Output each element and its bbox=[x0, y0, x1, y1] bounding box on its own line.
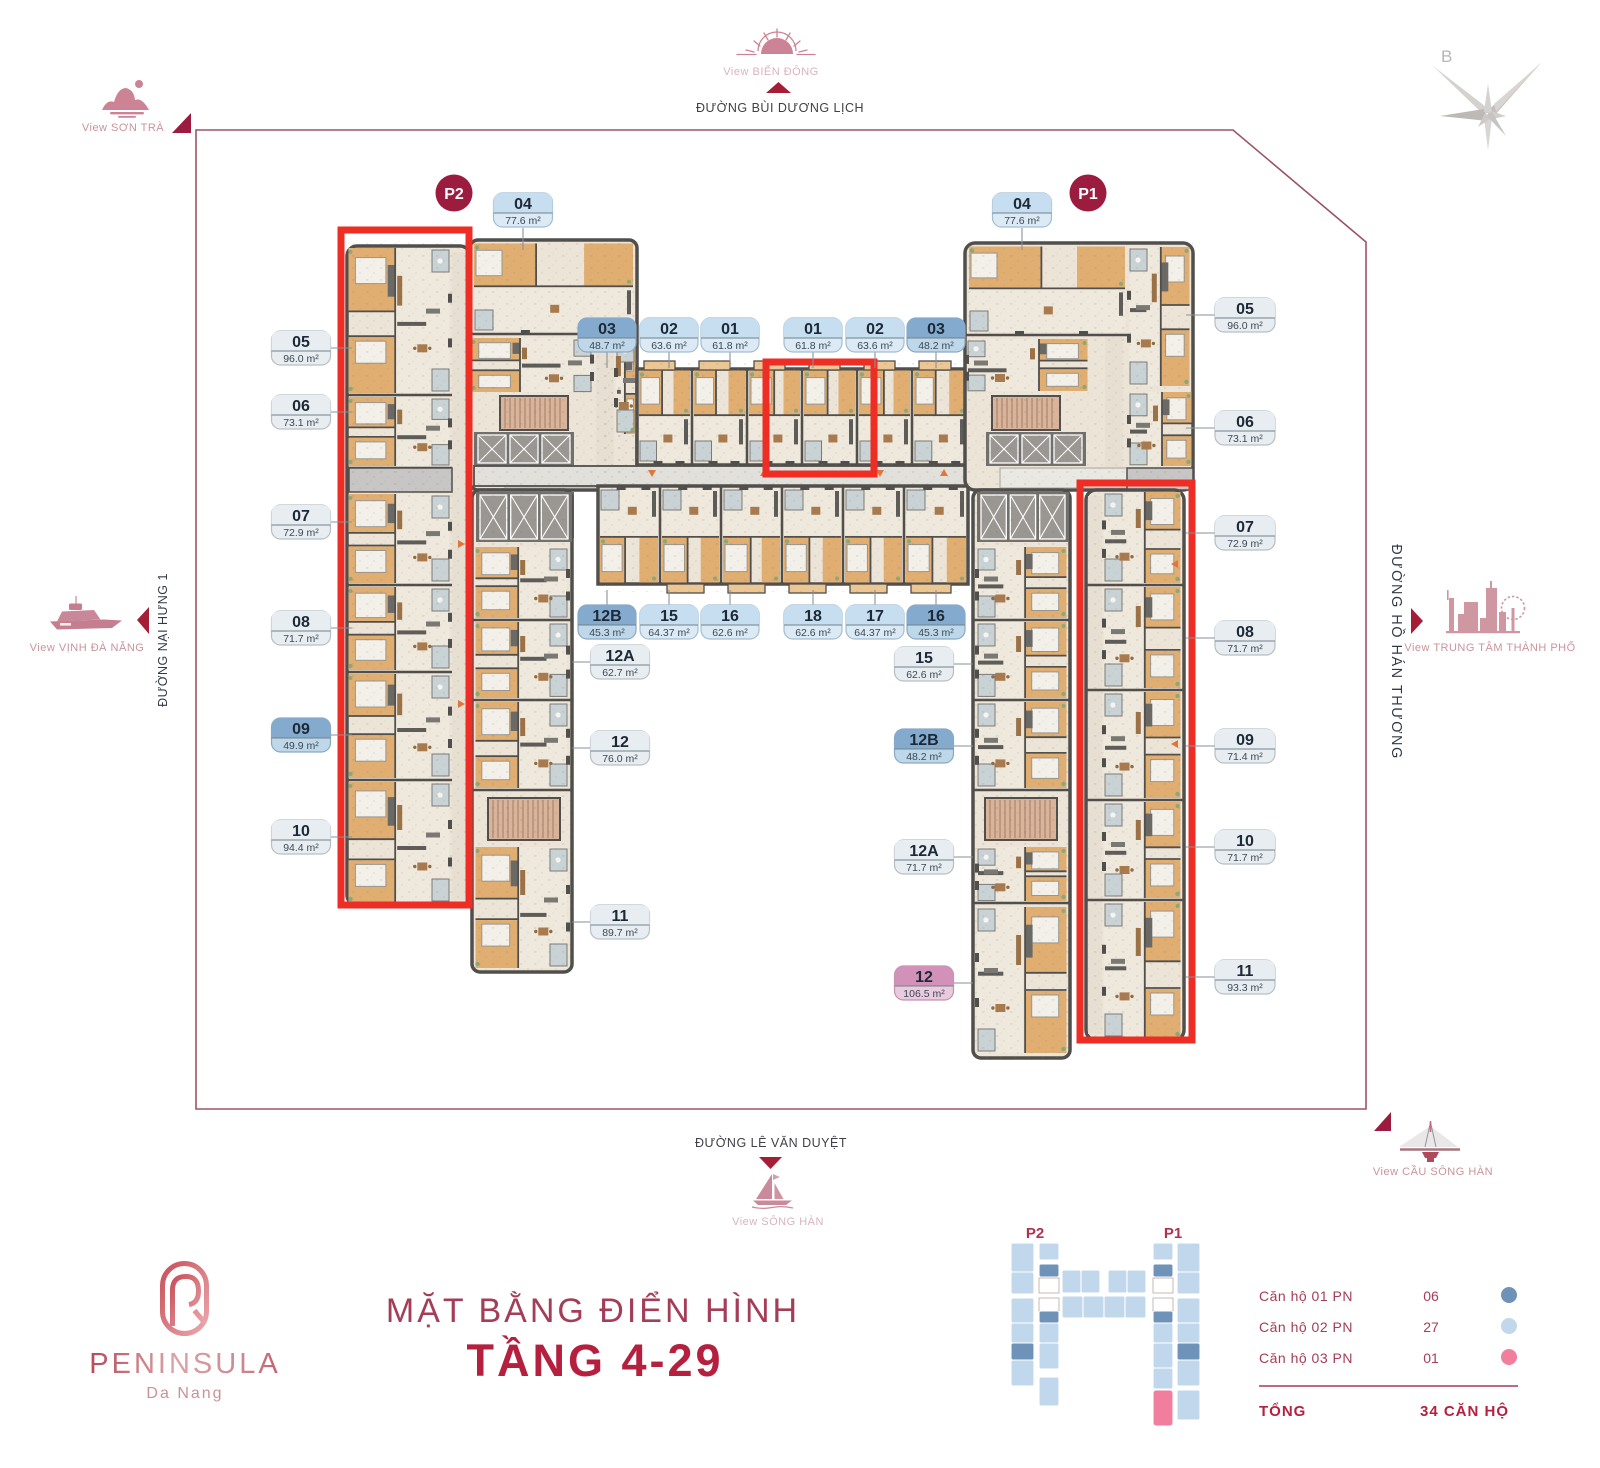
svg-text:12A: 12A bbox=[605, 648, 635, 665]
svg-text:P1: P1 bbox=[1164, 1225, 1182, 1242]
svg-text:61.8 m²: 61.8 m² bbox=[712, 340, 748, 352]
svg-text:B: B bbox=[1441, 47, 1452, 66]
svg-text:12A: 12A bbox=[909, 843, 939, 860]
svg-text:12B: 12B bbox=[909, 732, 938, 749]
svg-text:View VỊNH ĐÀ NẴNG: View VỊNH ĐÀ NẴNG bbox=[30, 641, 145, 654]
svg-text:15: 15 bbox=[915, 650, 933, 667]
svg-text:73.1 m²: 73.1 m² bbox=[283, 417, 319, 429]
svg-text:16: 16 bbox=[927, 608, 945, 625]
svg-text:06: 06 bbox=[1423, 1288, 1439, 1304]
svg-text:71.7 m²: 71.7 m² bbox=[906, 862, 942, 874]
svg-text:71.7 m²: 71.7 m² bbox=[283, 633, 319, 645]
svg-text:01: 01 bbox=[804, 321, 822, 338]
svg-text:05: 05 bbox=[1236, 301, 1254, 318]
svg-text:10: 10 bbox=[292, 823, 310, 840]
svg-text:07: 07 bbox=[1236, 519, 1254, 536]
svg-text:34 CĂN HỘ: 34 CĂN HỘ bbox=[1420, 1402, 1509, 1420]
svg-text:73.1 m²: 73.1 m² bbox=[1227, 433, 1263, 445]
svg-text:03: 03 bbox=[598, 321, 616, 338]
svg-text:ĐƯỜNG HỒ HÁN THƯƠNG: ĐƯỜNG HỒ HÁN THƯƠNG bbox=[1388, 544, 1406, 760]
svg-text:48.2 m²: 48.2 m² bbox=[918, 340, 954, 352]
svg-text:45.3 m²: 45.3 m² bbox=[589, 627, 625, 639]
svg-text:71.4 m²: 71.4 m² bbox=[1227, 751, 1263, 763]
svg-text:16: 16 bbox=[721, 608, 739, 625]
svg-text:06: 06 bbox=[292, 398, 310, 415]
svg-text:10: 10 bbox=[1236, 833, 1254, 850]
svg-text:96.0 m²: 96.0 m² bbox=[283, 353, 319, 365]
svg-text:Căn hộ 03 PN: Căn hộ 03 PN bbox=[1259, 1350, 1353, 1366]
svg-text:03: 03 bbox=[927, 321, 945, 338]
svg-text:12: 12 bbox=[611, 734, 629, 751]
svg-text:01: 01 bbox=[721, 321, 739, 338]
svg-text:89.7 m²: 89.7 m² bbox=[602, 927, 638, 939]
svg-text:96.0 m²: 96.0 m² bbox=[1227, 320, 1263, 332]
svg-text:94.4 m²: 94.4 m² bbox=[283, 842, 319, 854]
svg-text:MẶT BẰNG ĐIỂN HÌNH: MẶT BẰNG ĐIỂN HÌNH bbox=[386, 1292, 800, 1330]
svg-text:TẦNG 4-29: TẦNG 4-29 bbox=[466, 1335, 723, 1386]
svg-text:64.37 m²: 64.37 m² bbox=[648, 627, 690, 639]
svg-text:17: 17 bbox=[866, 608, 884, 625]
svg-text:61.8 m²: 61.8 m² bbox=[795, 340, 831, 352]
svg-text:01: 01 bbox=[1423, 1350, 1439, 1366]
svg-text:12: 12 bbox=[915, 969, 933, 986]
svg-text:TỔNG: TỔNG bbox=[1259, 1402, 1306, 1420]
svg-text:Da Nang: Da Nang bbox=[146, 1385, 223, 1402]
svg-text:62.7 m²: 62.7 m² bbox=[602, 667, 638, 679]
svg-text:62.6 m²: 62.6 m² bbox=[906, 669, 942, 681]
svg-text:04: 04 bbox=[514, 196, 532, 213]
svg-text:11: 11 bbox=[612, 908, 629, 925]
svg-text:72.9 m²: 72.9 m² bbox=[1227, 538, 1263, 550]
svg-text:02: 02 bbox=[660, 321, 678, 338]
svg-text:View BIỂN ĐÔNG: View BIỂN ĐÔNG bbox=[723, 65, 818, 78]
svg-text:View TRUNG TÂM THÀNH PHỐ: View TRUNG TÂM THÀNH PHỐ bbox=[1404, 640, 1575, 654]
svg-text:P1: P1 bbox=[1078, 186, 1098, 203]
svg-text:ĐƯỜNG BÙI DƯƠNG LỊCH: ĐƯỜNG BÙI DƯƠNG LỊCH bbox=[696, 100, 864, 115]
svg-text:77.6 m²: 77.6 m² bbox=[505, 215, 541, 227]
svg-text:64.37 m²: 64.37 m² bbox=[854, 627, 896, 639]
svg-text:62.6 m²: 62.6 m² bbox=[712, 627, 748, 639]
svg-text:P2: P2 bbox=[1026, 1225, 1044, 1242]
svg-text:48.7 m²: 48.7 m² bbox=[589, 340, 625, 352]
svg-text:48.2 m²: 48.2 m² bbox=[906, 751, 942, 763]
svg-text:72.9 m²: 72.9 m² bbox=[283, 527, 319, 539]
svg-text:63.6 m²: 63.6 m² bbox=[857, 340, 893, 352]
svg-text:Căn hộ 01 PN: Căn hộ 01 PN bbox=[1259, 1288, 1353, 1304]
svg-text:07: 07 bbox=[292, 508, 310, 525]
svg-text:02: 02 bbox=[866, 321, 884, 338]
svg-text:63.6 m²: 63.6 m² bbox=[651, 340, 687, 352]
svg-text:ĐƯỜNG LÊ VĂN DUYỆT: ĐƯỜNG LÊ VĂN DUYỆT bbox=[695, 1135, 847, 1150]
svg-text:09: 09 bbox=[292, 721, 310, 738]
svg-text:77.6 m²: 77.6 m² bbox=[1004, 215, 1040, 227]
svg-text:18: 18 bbox=[804, 608, 822, 625]
svg-text:45.3 m²: 45.3 m² bbox=[918, 627, 954, 639]
svg-text:27: 27 bbox=[1423, 1319, 1439, 1335]
svg-text:View SƠN TRÀ: View SƠN TRÀ bbox=[82, 121, 164, 134]
svg-text:62.6 m²: 62.6 m² bbox=[795, 627, 831, 639]
svg-text:71.7 m²: 71.7 m² bbox=[1227, 643, 1263, 655]
svg-text:93.3 m²: 93.3 m² bbox=[1227, 982, 1263, 994]
svg-text:11: 11 bbox=[1237, 963, 1254, 980]
svg-text:15: 15 bbox=[660, 608, 678, 625]
svg-text:View CẦU SÔNG HÀN: View CẦU SÔNG HÀN bbox=[1373, 1165, 1493, 1178]
svg-text:PENINSULA: PENINSULA bbox=[89, 1348, 280, 1380]
svg-text:05: 05 bbox=[292, 334, 310, 351]
svg-text:View SÔNG HÀN: View SÔNG HÀN bbox=[732, 1215, 824, 1228]
svg-text:71.7 m²: 71.7 m² bbox=[1227, 852, 1263, 864]
svg-text:76.0 m²: 76.0 m² bbox=[602, 753, 638, 765]
svg-text:P2: P2 bbox=[444, 186, 464, 203]
svg-text:08: 08 bbox=[292, 614, 310, 631]
svg-text:106.5 m²: 106.5 m² bbox=[903, 988, 945, 1000]
svg-text:09: 09 bbox=[1236, 732, 1254, 749]
svg-text:49.9 m²: 49.9 m² bbox=[283, 740, 319, 752]
svg-text:12B: 12B bbox=[592, 608, 621, 625]
svg-text:04: 04 bbox=[1013, 196, 1031, 213]
svg-text:06: 06 bbox=[1236, 414, 1254, 431]
svg-text:Căn hộ 02 PN: Căn hộ 02 PN bbox=[1259, 1319, 1353, 1335]
svg-text:ĐƯỜNG NẠI HƯNG 1: ĐƯỜNG NẠI HƯNG 1 bbox=[155, 573, 170, 707]
svg-text:08: 08 bbox=[1236, 624, 1254, 641]
